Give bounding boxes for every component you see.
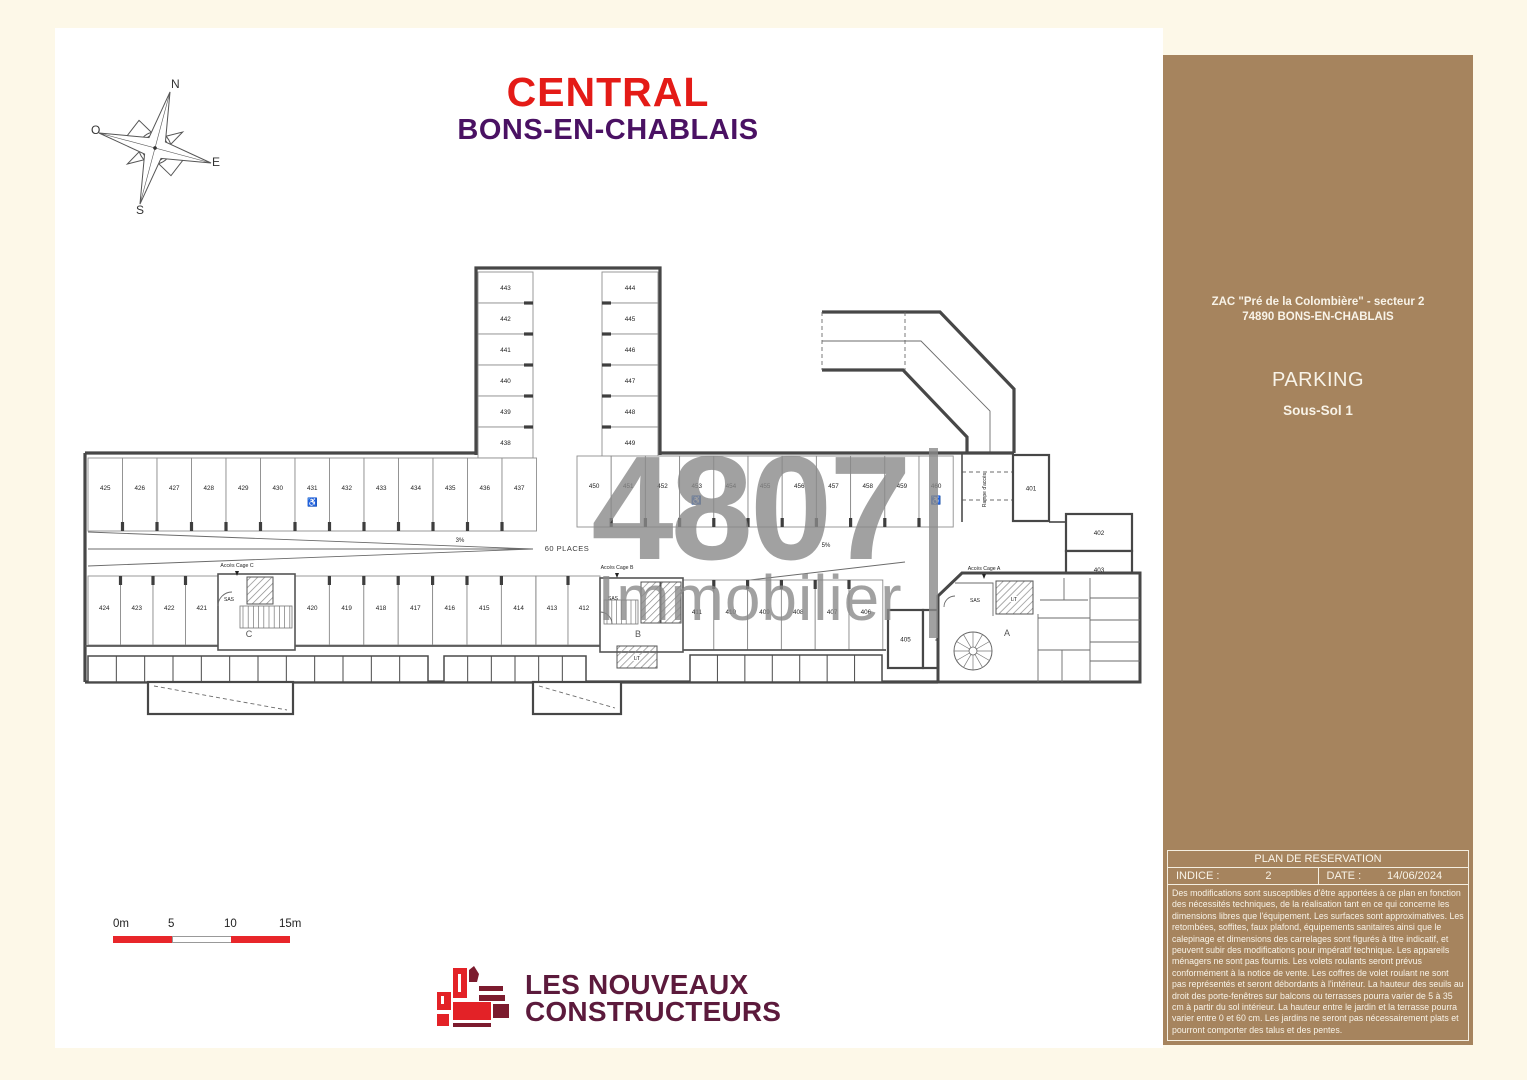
svg-text:431: 431 — [307, 485, 318, 492]
svg-text:432: 432 — [341, 485, 352, 492]
stair-letter-b: B — [635, 629, 641, 639]
parking-stall-421: 421 — [184, 576, 218, 645]
parking-stall-426: 426 — [121, 458, 157, 531]
compass-north-label: N — [171, 77, 180, 91]
parking-stall-444: 444 — [602, 272, 658, 303]
svg-text:441: 441 — [500, 347, 511, 354]
svg-text:453: 453 — [691, 483, 702, 490]
parking-stall-454: 454 — [712, 456, 748, 527]
parking-stall-439: 439 — [478, 394, 533, 427]
parking-stall-446: 446 — [602, 332, 658, 365]
page-title: CENTRAL — [398, 70, 818, 114]
parking-stall-413: 413 — [536, 576, 568, 645]
svg-text:418: 418 — [376, 605, 387, 612]
svg-text:417: 417 — [410, 605, 421, 612]
parking-stall-443: 443 — [478, 272, 533, 303]
project-address-line1: ZAC "Pré de la Colombière" - secteur 2 — [1163, 295, 1473, 310]
room-401: 401 — [1013, 455, 1049, 521]
stall-group-east-bottom: 411410409408407406 — [680, 580, 883, 650]
lt-label-a: LT — [1011, 597, 1018, 603]
page-subtitle: BONS-EN-CHABLAIS — [398, 114, 818, 146]
date-label: DATE : — [1319, 870, 1362, 882]
date-value: 14/06/2024 — [1361, 870, 1468, 882]
svg-text:434: 434 — [410, 485, 421, 492]
parking-stall-442: 442 — [478, 301, 533, 334]
svg-text:415: 415 — [479, 605, 490, 612]
svg-text:448: 448 — [625, 409, 636, 416]
parking-stall-448: 448 — [602, 394, 658, 427]
svg-text:439: 439 — [500, 409, 511, 416]
parking-stall-415: 415 — [465, 576, 501, 645]
compass-south-label: S — [136, 203, 144, 217]
parking-stall-411: 411 — [680, 580, 714, 650]
cellar-strip-mid — [444, 656, 586, 682]
builder-logo-line2: CONSTRUCTEURS — [525, 998, 781, 1025]
parking-stall-414: 414 — [500, 576, 536, 645]
svg-text:408: 408 — [793, 609, 804, 616]
parking-stall-437: 437 — [500, 458, 536, 531]
svg-text:455: 455 — [760, 483, 771, 490]
svg-text:412: 412 — [579, 605, 590, 612]
svg-text:458: 458 — [862, 483, 873, 490]
indice-cell: INDICE : 2 — [1168, 868, 1319, 884]
svg-text:422: 422 — [164, 605, 175, 612]
parking-stall-427: 427 — [155, 458, 191, 531]
parking-stall-456: 456 — [781, 456, 817, 527]
sas-label-a: SAS — [970, 598, 981, 604]
compass-west-label: O — [91, 123, 100, 137]
svg-text:419: 419 — [341, 605, 352, 612]
parking-stall-431: 431♿ — [293, 458, 329, 531]
scale-segment-red2 — [231, 936, 290, 943]
parking-stall-440: 440 — [478, 363, 533, 396]
stall-group-east-top: 450451452453♿454455456457458459460♿ — [577, 456, 953, 527]
parking-stall-406: 406 — [847, 580, 882, 650]
parking-stall-452: 452 — [644, 456, 680, 527]
parking-stall-419: 419 — [328, 576, 364, 645]
svg-text:428: 428 — [203, 485, 214, 492]
svg-text:440: 440 — [500, 378, 511, 385]
builder-logo-icon — [433, 966, 513, 1030]
parking-stall-434: 434 — [397, 458, 433, 531]
scale-label-10: 10 — [224, 918, 237, 930]
parking-stall-438: 438 — [478, 425, 533, 458]
lt-label-b: LT — [634, 656, 641, 662]
svg-text:420: 420 — [307, 605, 318, 612]
reservation-table-header: PLAN DE RESERVATION — [1168, 851, 1468, 868]
parking-stall-409: 409 — [746, 580, 781, 650]
svg-text:410: 410 — [725, 609, 736, 616]
stall-group-west-top: 425426427428429430431♿432433434435436437 — [88, 458, 537, 531]
parking-stall-455: 455 — [746, 456, 782, 527]
slope-label-west: 3% — [456, 538, 465, 544]
svg-text:427: 427 — [169, 485, 180, 492]
parking-stall-450: 450 — [577, 456, 611, 527]
parking-stall-458: 458 — [849, 456, 885, 527]
parking-stall-416: 416 — [431, 576, 467, 645]
cellar-strip-west — [88, 656, 428, 682]
svg-text:459: 459 — [897, 483, 908, 490]
wheelchair-icon: ♿ — [307, 497, 318, 507]
svg-text:407: 407 — [827, 609, 838, 616]
indice-value: 2 — [1219, 870, 1317, 882]
cellar-strip-east — [690, 655, 882, 682]
svg-text:447: 447 — [625, 378, 636, 385]
svg-text:435: 435 — [445, 485, 456, 492]
svg-text:421: 421 — [196, 605, 207, 612]
svg-text:416: 416 — [445, 605, 456, 612]
svg-text:456: 456 — [794, 483, 805, 490]
ramp-label: Rampe d'accès — [982, 472, 988, 507]
svg-text:429: 429 — [238, 485, 249, 492]
slope-label-east: 5% — [822, 543, 831, 549]
parking-stall-417: 417 — [397, 576, 433, 645]
svg-text:409: 409 — [759, 609, 770, 616]
date-cell: DATE : 14/06/2024 — [1319, 868, 1469, 884]
svg-text:449: 449 — [625, 440, 636, 447]
svg-text:451: 451 — [623, 483, 634, 490]
parking-stall-425: 425 — [88, 458, 123, 531]
parking-stall-420: 420 — [295, 576, 329, 645]
reservation-table-row: INDICE : 2 DATE : 14/06/2024 — [1168, 868, 1468, 885]
svg-text:442: 442 — [500, 316, 511, 323]
parking-stall-408: 408 — [780, 580, 815, 650]
plan-sheet: N E S O CENTRAL BONS-EN-CHABLAIS 4434424… — [55, 28, 1163, 1048]
access-cage-c-label: Accès Cage C — [220, 563, 253, 569]
parking-stall-451: 451 — [610, 456, 646, 527]
svg-text:437: 437 — [514, 485, 525, 492]
compass-rose: N E S O — [83, 66, 233, 236]
scale-bar: 0m 5 10 15m — [113, 918, 323, 958]
wheelchair-icon: ♿ — [691, 495, 702, 505]
parking-stall-428: 428 — [190, 458, 226, 531]
builder-logo-text: LES NOUVEAUX CONSTRUCTEURS — [525, 971, 781, 1025]
svg-text:446: 446 — [625, 347, 636, 354]
indice-label: INDICE : — [1168, 870, 1219, 882]
svg-text:425: 425 — [100, 485, 111, 492]
parking-stall-457: 457 — [815, 456, 851, 527]
level-subtitle: Sous-Sol 1 — [1163, 403, 1473, 418]
disclaimer-text: Des modifications sont susceptibles d'êt… — [1168, 885, 1468, 1040]
tech-room-mid — [533, 682, 621, 714]
room-405: 405 — [888, 610, 923, 668]
parking-stall-422: 422 — [151, 576, 185, 645]
svg-text:411: 411 — [692, 609, 703, 616]
wheelchair-icon: ♿ — [931, 495, 942, 505]
scale-segment-red1 — [113, 936, 172, 943]
svg-text:445: 445 — [625, 316, 636, 323]
svg-text:444: 444 — [625, 285, 636, 292]
svg-text:454: 454 — [726, 483, 737, 490]
parking-stall-430: 430 — [259, 458, 295, 531]
level-title: PARKING — [1163, 369, 1473, 392]
stair-letter-c: C — [246, 629, 253, 639]
stall-group-block-right: 444445446447448449 — [602, 272, 658, 458]
access-cage-a-label: Accès Cage A — [968, 566, 1001, 572]
parking-stall-436: 436 — [466, 458, 502, 531]
parking-stall-449: 449 — [602, 425, 658, 458]
svg-text:433: 433 — [376, 485, 387, 492]
svg-text:438: 438 — [500, 440, 511, 447]
scale-segment-white — [172, 936, 233, 943]
sidebar: ZAC "Pré de la Colombière" - secteur 2 7… — [1163, 55, 1473, 1045]
compass-east-label: E — [212, 155, 220, 169]
parking-stall-432: 432 — [328, 458, 364, 531]
svg-text:430: 430 — [272, 485, 283, 492]
svg-text:402: 402 — [1094, 530, 1105, 537]
svg-text:401: 401 — [1026, 486, 1037, 493]
parking-stall-410: 410 — [712, 580, 747, 650]
svg-text:413: 413 — [547, 605, 558, 612]
svg-text:436: 436 — [479, 485, 490, 492]
svg-text:424: 424 — [99, 605, 110, 612]
floor-plan: 4434424414404394384444454464474484494254… — [80, 255, 1155, 730]
parking-stall-424: 424 — [88, 576, 121, 645]
parking-stall-407: 407 — [814, 580, 849, 650]
parking-stall-453: 453♿ — [678, 456, 714, 527]
parking-stall-418: 418 — [362, 576, 398, 645]
parking-stall-423: 423 — [119, 576, 153, 645]
builder-logo-line1: LES NOUVEAUX — [525, 971, 781, 998]
svg-text:426: 426 — [134, 485, 145, 492]
svg-text:423: 423 — [131, 605, 142, 612]
room-402: 402 — [1066, 514, 1132, 551]
parking-stall-445: 445 — [602, 301, 658, 334]
stall-group-block-left: 443442441440439438 — [478, 272, 533, 458]
svg-text:452: 452 — [657, 483, 668, 490]
svg-text:450: 450 — [589, 483, 600, 490]
stall-group-west-bottom-a: 424423422421 — [88, 576, 218, 645]
parking-stall-459: 459 — [883, 456, 919, 527]
parking-stall-429: 429 — [224, 458, 260, 531]
access-cage-b-label: Accès Cage B — [601, 565, 634, 571]
stall-group-west-bottom-b: 420419418417416415414 — [295, 576, 536, 645]
scale-label-0: 0m — [113, 918, 129, 930]
stall-group-west-bottom-c: 413412 — [536, 576, 600, 645]
stair-letter-a: A — [1004, 628, 1010, 638]
project-address-line2: 74890 BONS-EN-CHABLAIS — [1163, 310, 1473, 325]
places-count-label: 60 PLACES — [545, 544, 590, 553]
tech-room-west — [148, 682, 293, 714]
header: CENTRAL BONS-EN-CHABLAIS — [398, 70, 818, 146]
svg-text:443: 443 — [500, 285, 511, 292]
reservation-table: PLAN DE RESERVATION INDICE : 2 DATE : 14… — [1167, 850, 1469, 1041]
sas-label-c: SAS — [224, 597, 235, 603]
parking-stall-441: 441 — [478, 332, 533, 365]
parking-stall-412: 412 — [566, 576, 600, 645]
svg-text:406: 406 — [861, 609, 872, 616]
scale-label-5: 5 — [168, 918, 174, 930]
scale-label-15: 15m — [279, 918, 301, 930]
sas-label-b: SAS — [608, 596, 619, 602]
svg-text:414: 414 — [513, 605, 524, 612]
svg-text:460: 460 — [931, 483, 942, 490]
parking-stall-435: 435 — [431, 458, 467, 531]
svg-text:457: 457 — [828, 483, 839, 490]
builder-logo: LES NOUVEAUX CONSTRUCTEURS — [433, 966, 781, 1030]
project-address: ZAC "Pré de la Colombière" - secteur 2 7… — [1163, 295, 1473, 325]
parking-stall-460: 460♿ — [917, 456, 953, 527]
parking-stall-447: 447 — [602, 363, 658, 396]
svg-text:405: 405 — [900, 637, 911, 644]
parking-stall-433: 433 — [362, 458, 398, 531]
